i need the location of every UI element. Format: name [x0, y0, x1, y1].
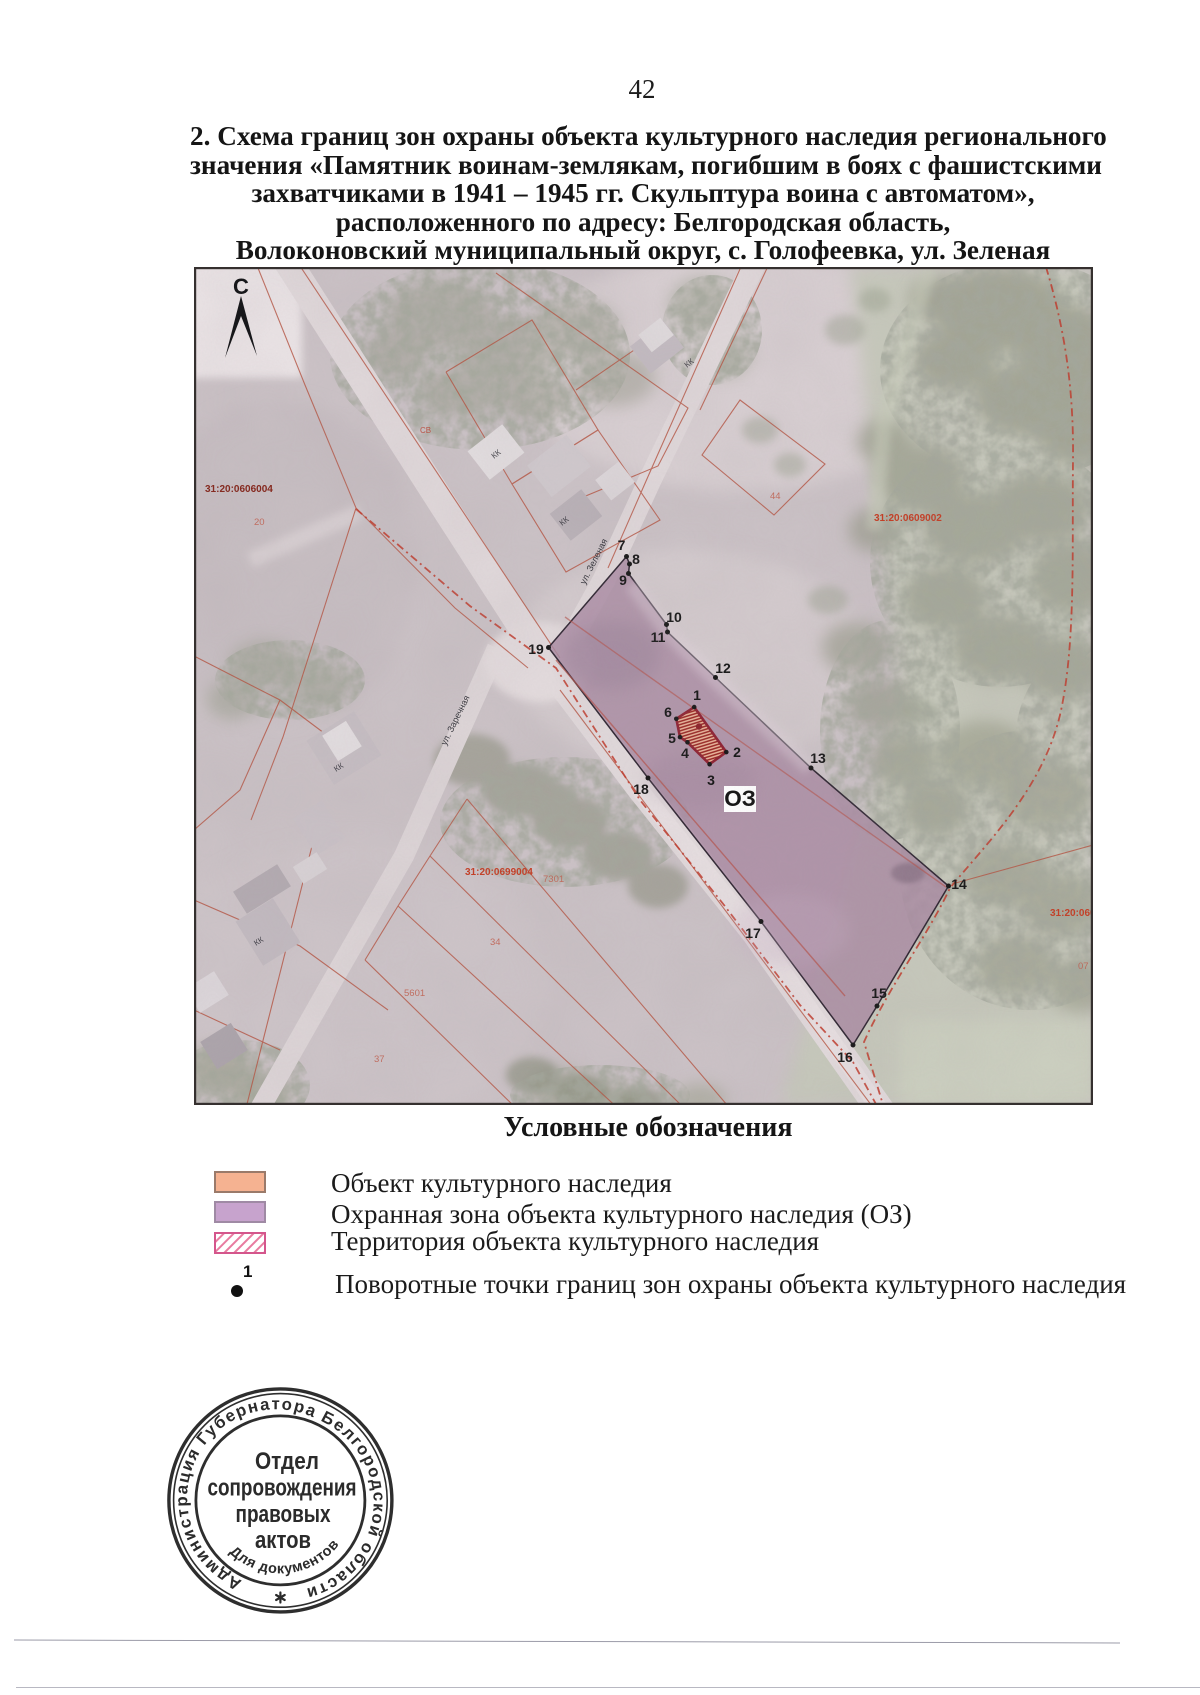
svg-text:Отдел: Отдел — [255, 1448, 319, 1475]
svg-text:С: С — [233, 274, 249, 299]
svg-text:актов: актов — [255, 1527, 311, 1554]
svg-text:сопровождения: сопровождения — [208, 1475, 357, 1502]
svg-text:правовых: правовых — [236, 1501, 332, 1528]
